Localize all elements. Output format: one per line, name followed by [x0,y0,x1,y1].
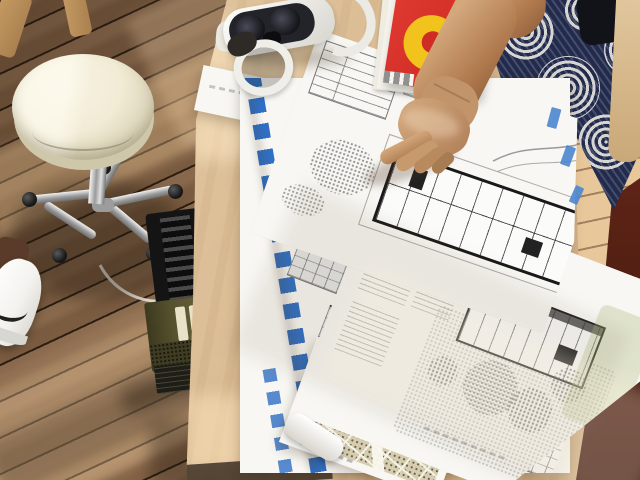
stool-seam [32,113,134,151]
plan-core [521,237,543,258]
sneaker-sole [0,321,28,348]
photo-scene [0,0,640,480]
stool-caster [22,192,37,207]
stool-caster [168,184,183,199]
sneaker-stripe [0,293,29,324]
stool-caster [52,248,67,263]
stool-seat [12,54,154,160]
radio-key [175,306,189,341]
